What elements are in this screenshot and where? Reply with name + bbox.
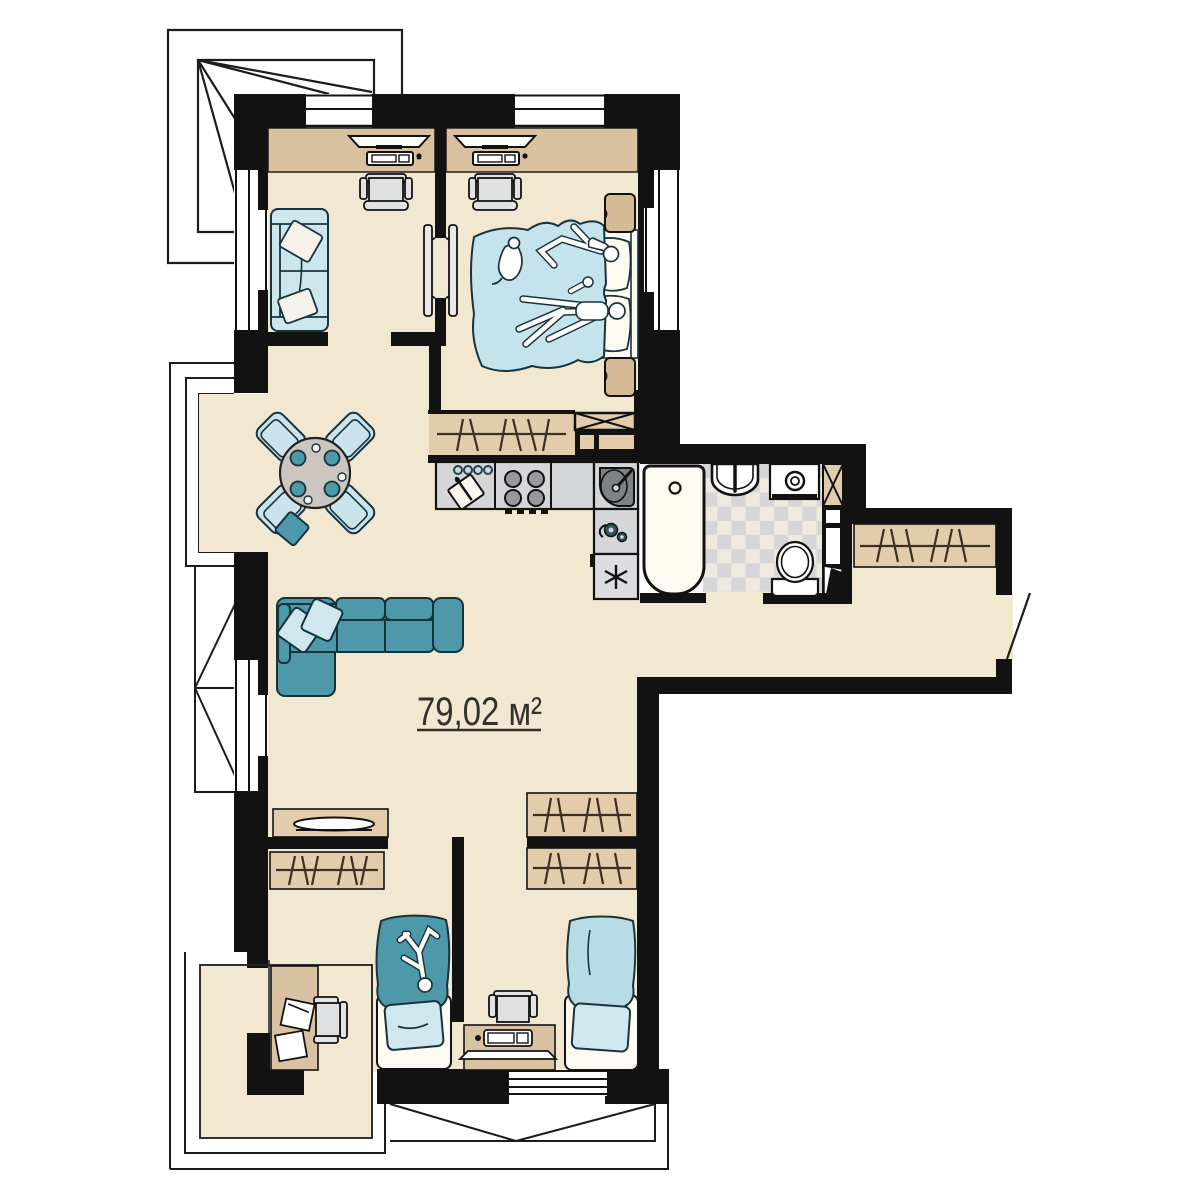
svg-text:79,02 м²: 79,02 м² [417, 690, 542, 734]
